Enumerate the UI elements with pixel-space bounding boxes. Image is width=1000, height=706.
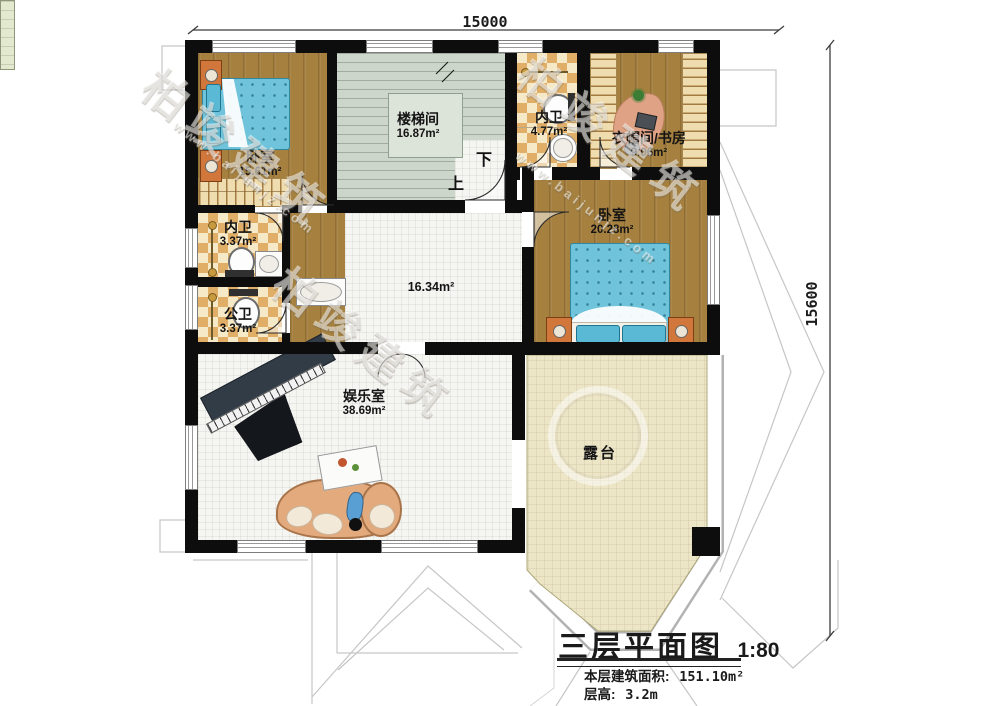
door-swing-layer: [0, 0, 1000, 706]
double-door-arc: [401, 354, 425, 378]
door-arc: [534, 212, 569, 247]
dimension-right: 15600: [803, 239, 821, 369]
door-arc: [520, 137, 550, 167]
door-arc: [600, 137, 630, 167]
door-arc: [302, 173, 334, 205]
floor-height-label: 层高:: [584, 687, 616, 702]
floor-plan-canvas: 卧室 15.61m² 楼梯间 16.87m² 内卫 4.77m² 衣帽间/书房 …: [0, 0, 1000, 706]
stair-direction-down: 下: [476, 146, 492, 170]
double-door-arc: [378, 354, 401, 377]
watermark-logo: [548, 386, 648, 486]
floor-area-label: 本层建筑面积:: [584, 669, 670, 684]
dimension-top: 15000: [420, 13, 550, 31]
stair-direction-up: 上: [448, 170, 464, 194]
stair-break-mark: [436, 62, 454, 82]
floor-area-line: 本层建筑面积: 151.10m²: [584, 665, 744, 685]
door-arc: [256, 303, 286, 333]
floor-area-value: 151.10m²: [679, 669, 744, 685]
floor-height-value: 3.2m: [625, 687, 658, 703]
plan-scale: 1:80: [737, 639, 779, 662]
door-arc: [255, 213, 283, 241]
floor-height-line: 层高: 3.2m: [584, 683, 658, 703]
